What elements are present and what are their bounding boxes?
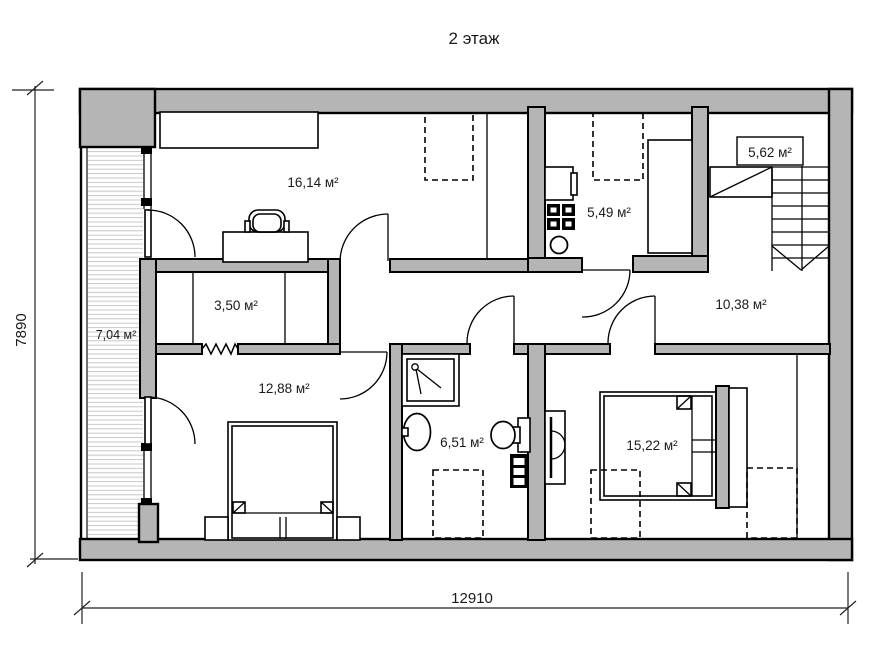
balcony-deck: [81, 110, 143, 540]
bathroom-radiator: [510, 454, 528, 488]
floor-plan-page: 2 этаж 7890 12910: [0, 0, 887, 649]
desk: [223, 232, 308, 262]
balcony-door-study: [145, 210, 195, 257]
floor-plan-drawing: 2 этаж 7890 12910: [0, 0, 887, 649]
study-door: [340, 214, 388, 262]
page-title: 2 этаж: [449, 29, 501, 48]
room-label-bathroom: 6,51 м²: [440, 435, 484, 450]
height-dimension-label: 7890: [13, 313, 30, 346]
bedroom2-door: [608, 296, 655, 343]
room-label-bedroom2: 15,22 м²: [626, 438, 678, 453]
toilet: [491, 418, 530, 452]
utility-furniture: [545, 113, 692, 254]
bedroom2-radiator: [545, 411, 565, 484]
opening-zigzag: [202, 344, 238, 354]
study-skylight: [425, 113, 473, 180]
room-label-study: 16,14 м²: [287, 175, 339, 190]
bed-double: [228, 422, 337, 540]
headboard-shelf: [729, 388, 747, 507]
headboard: [716, 386, 729, 508]
room-label-hall: 10,38 м²: [715, 297, 767, 312]
bedroom1-door: [340, 352, 387, 399]
nightstand-left: [205, 517, 228, 540]
balcony-door-bedroom1: [145, 397, 195, 444]
boiler: [545, 167, 573, 200]
bathroom-skylight: [433, 470, 483, 538]
bedroom1-furniture: [205, 422, 360, 540]
stove: [547, 204, 575, 230]
utility-wardrobe: [648, 140, 692, 253]
utility-door: [582, 270, 630, 317]
desk-chair: [245, 210, 289, 232]
room-label-utility: 5,49 м²: [587, 205, 631, 220]
utility-skylight: [593, 113, 643, 180]
bedroom2-skylight-2: [747, 468, 797, 538]
room-label-bedroom1: 12,88 м²: [258, 381, 310, 396]
room-label-stairs: 5,62 м²: [748, 145, 792, 160]
nightstand-right: [337, 517, 360, 540]
room-label-closet: 3,50 м²: [214, 298, 258, 313]
width-dimension-label: 12910: [451, 590, 493, 607]
shower: [402, 354, 459, 406]
washbasin: [402, 414, 431, 451]
utility-sink: [551, 237, 568, 254]
room-label-balcony: 7,04 м²: [96, 328, 137, 342]
bathroom-door: [467, 296, 514, 343]
